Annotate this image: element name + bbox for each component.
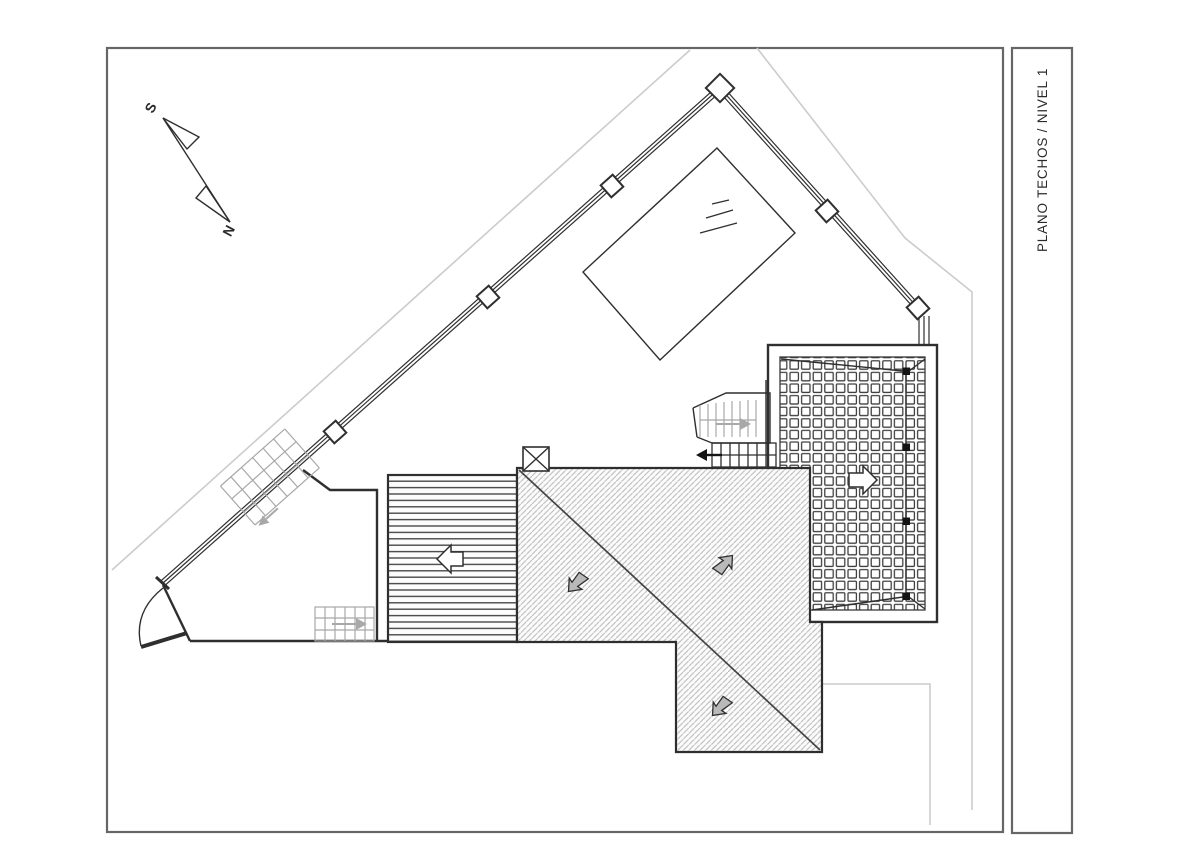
pergola-post	[903, 518, 911, 526]
title-block: PLANO TECHOS / NIVEL 1	[1012, 48, 1072, 833]
louver-deck	[388, 475, 517, 642]
pergola-post	[903, 593, 911, 601]
drawing-sheet: PLANO TECHOS / NIVEL 1 S N	[0, 0, 1200, 868]
pergola-post	[903, 368, 911, 376]
roof-plan-svg: PLANO TECHOS / NIVEL 1 S N	[0, 0, 1200, 868]
chimney	[523, 447, 549, 471]
sheet-title: PLANO TECHOS / NIVEL 1	[1035, 68, 1050, 252]
pergola-post	[903, 444, 911, 452]
